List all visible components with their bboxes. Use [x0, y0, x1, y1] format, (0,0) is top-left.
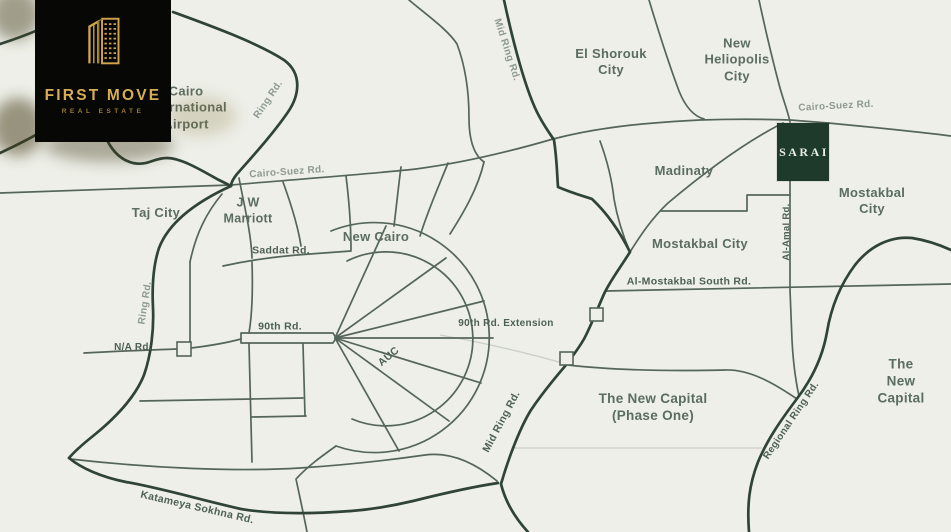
map-label-el-shorouk-city: El Shorouk City: [575, 46, 647, 79]
map-label-rd-90-extension: 90th Rd. Extension: [458, 318, 553, 331]
sarai-marker[interactable]: SARAI: [777, 123, 829, 181]
map-label-taj-city: Taj City: [132, 205, 180, 221]
map-label-mostakbal-city-c: Mostakbal City: [652, 236, 748, 252]
map-label-cairo-suez-rd-w: Cairo-Suez Rd.: [249, 164, 325, 182]
map-label-katameya-sokhna-rd: Katameya Sokhna Rd.: [139, 489, 255, 528]
map-label-cairo-suez-rd-ne: Cairo-Suez Rd.: [798, 99, 874, 115]
map-label-al-amal-rd: Al-Amal Rd.: [781, 203, 793, 260]
map-label-mostakbal-city-e: Mostakbal City: [833, 185, 912, 218]
map-label-jw-marriott: J W Marriott: [224, 195, 273, 226]
map-label-regional-ring-rd: Regional Ring Rd.: [761, 380, 822, 463]
map-label-na-rd: N/A Rd.: [114, 342, 152, 355]
map-label-the-new-capital-e: The New Capital: [876, 357, 926, 408]
map-label-saddat-rd: Saddat Rd.: [252, 244, 310, 257]
map-label-rd-90: 90th Rd.: [258, 320, 302, 333]
map-label-new-heliopolis-city: New Heliopolis City: [704, 36, 769, 85]
map-label-mid-ring-rd-n: Mid Ring Rd.: [490, 17, 522, 82]
first-move-logo: FIRST MOVE REAL ESTATE: [35, 0, 171, 142]
map-label-auc: AUC: [376, 344, 403, 369]
logo-title: FIRST MOVE: [45, 87, 162, 105]
map-label-mid-ring-rd-s: Mid Ring Rd.: [480, 389, 523, 455]
building-icon: [72, 4, 134, 85]
map-canvas: Cairo International AirportEl Shorouk Ci…: [0, 0, 951, 532]
map-label-al-mostakbal-south-rd: Al-Mostakbal South Rd.: [627, 275, 751, 288]
logo-subtitle: REAL ESTATE: [62, 108, 145, 115]
map-label-ring-rd-n: Ring Rd.: [252, 78, 287, 121]
map-label-ring-rd-w: Ring Rd.: [136, 281, 155, 326]
map-label-madinaty: Madinaty: [655, 163, 714, 179]
sarai-marker-label: SARAI: [779, 145, 829, 160]
map-label-new-cairo: New Cairo: [343, 229, 409, 245]
map-label-the-new-capital-phase-one: The New Capital (Phase One): [599, 391, 708, 425]
